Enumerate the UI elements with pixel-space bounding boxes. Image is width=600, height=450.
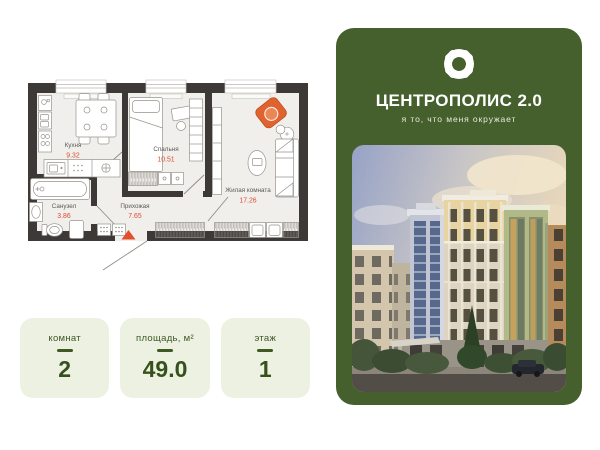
stat-card-area: площадь, м² 49.0 — [120, 318, 209, 398]
room-label-bedroom: Спальня — [153, 146, 178, 153]
building-render-illustration — [352, 145, 566, 392]
stat-card-floor: этаж 1 — [221, 318, 310, 398]
real-estate-card: Кухня 9.32 Спальня 10.51 Жилая комната 1… — [0, 0, 600, 450]
room-area-living: 17.26 — [239, 198, 256, 205]
brand-title: ЦЕНТРОПОЛИС 2.0 — [336, 91, 582, 111]
room-label-kitchen: Кухня — [65, 142, 82, 149]
stat-value: 1 — [259, 356, 272, 383]
stats-row: комнат 2 площадь, м² 49.0 этаж 1 — [20, 318, 310, 398]
stat-label: комнат — [48, 333, 81, 344]
floor-plan-drawing: Кухня 9.32 Спальня 10.51 Жилая комната 1… — [20, 58, 316, 284]
window-icon — [56, 80, 276, 93]
room-label-hallway: Прихожая — [120, 203, 149, 210]
room-area-bedroom: 10.51 — [157, 157, 174, 164]
room-area-kitchen: 9.32 — [66, 153, 80, 160]
stat-divider — [57, 349, 73, 352]
floor-plan: Кухня 9.32 Спальня 10.51 Жилая комната 1… — [20, 58, 316, 284]
room-area-bathroom: 3.86 — [57, 213, 71, 220]
stat-divider — [157, 349, 173, 352]
kitchen-furniture-icon — [39, 94, 121, 178]
stat-value: 2 — [58, 356, 71, 383]
room-label-living: Жилая комната — [225, 187, 271, 194]
four-petal-cross-logo-icon — [436, 43, 482, 85]
stat-divider — [257, 349, 273, 352]
stat-value: 49.0 — [143, 356, 188, 383]
radiator-icon — [64, 94, 270, 99]
stat-label: площадь, м² — [136, 333, 194, 344]
brand-panel: ЦЕНТРОПОЛИС 2.0 я то, что меня окружает — [336, 28, 582, 405]
room-label-bathroom: Санузел — [52, 203, 77, 210]
building-photo — [352, 145, 566, 392]
stat-card-rooms: комнат 2 — [20, 318, 109, 398]
brand-subtitle: я то, что меня окружает — [336, 114, 582, 124]
stat-label: этаж — [254, 333, 276, 344]
room-area-hallway: 7.65 — [128, 213, 142, 220]
